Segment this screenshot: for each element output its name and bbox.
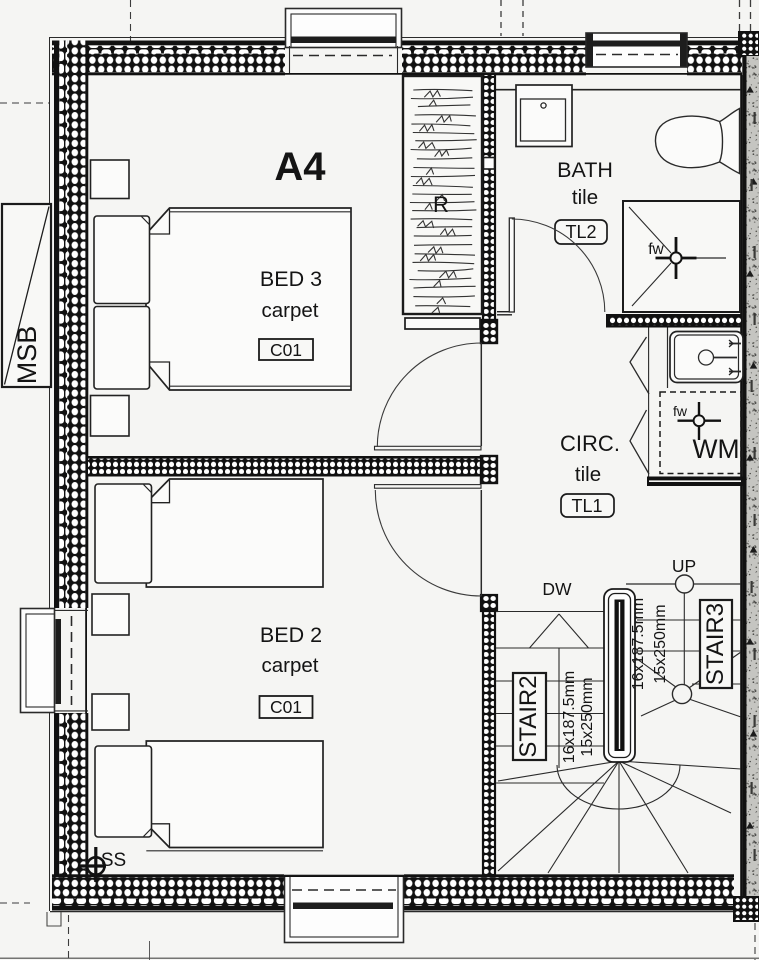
- svg-text:15x250mm: 15x250mm: [652, 604, 669, 683]
- svg-text:tile: tile: [575, 463, 601, 486]
- svg-text:fw: fw: [648, 241, 664, 258]
- svg-text:UP: UP: [672, 556, 696, 576]
- svg-text:15x250mm: 15x250mm: [579, 677, 596, 756]
- svg-text:carpet: carpet: [262, 654, 319, 677]
- svg-text:WM: WM: [692, 434, 739, 464]
- svg-text:CIRC.: CIRC.: [560, 431, 620, 456]
- svg-text:16x187.5mm: 16x187.5mm: [630, 598, 647, 691]
- svg-text:fw: fw: [673, 403, 688, 419]
- svg-text:MSB: MSB: [12, 326, 42, 385]
- svg-text:STAIR2: STAIR2: [515, 675, 542, 757]
- svg-text:carpet: carpet: [262, 299, 319, 322]
- svg-text:BATH: BATH: [557, 158, 613, 182]
- svg-text:16x187.5mm: 16x187.5mm: [561, 671, 578, 764]
- svg-text:DW: DW: [542, 579, 572, 599]
- svg-text:tile: tile: [572, 186, 598, 209]
- svg-text:BED 3: BED 3: [260, 267, 322, 291]
- svg-text:R: R: [433, 192, 449, 217]
- svg-text:SS: SS: [101, 850, 126, 871]
- svg-text:C01: C01: [270, 340, 302, 360]
- svg-text:BED 2: BED 2: [260, 623, 322, 647]
- svg-text:C01: C01: [270, 697, 302, 717]
- svg-text:STAIR3: STAIR3: [702, 603, 729, 685]
- svg-text:A4: A4: [274, 145, 326, 189]
- svg-text:TL1: TL1: [571, 496, 602, 516]
